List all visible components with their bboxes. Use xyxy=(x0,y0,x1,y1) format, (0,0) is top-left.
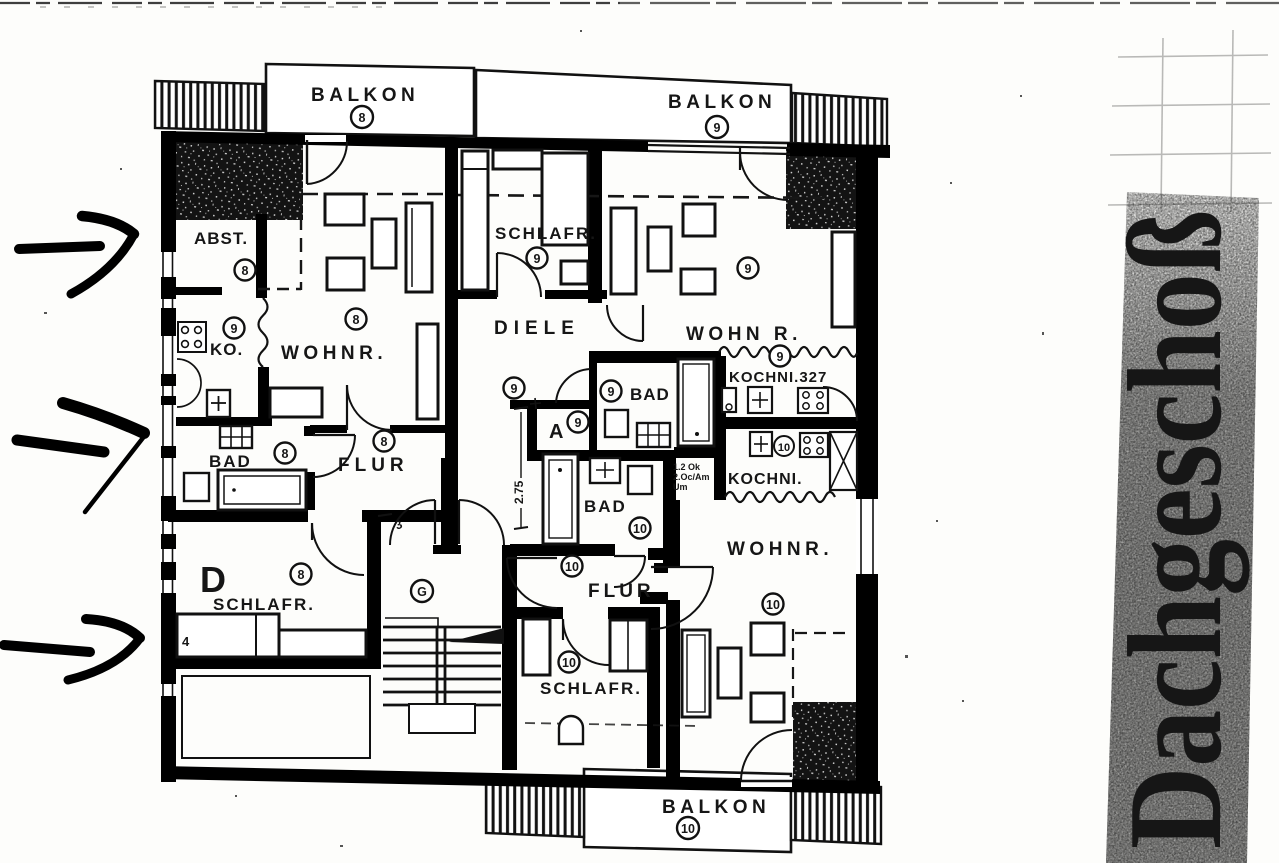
svg-text:BALKON: BALKON xyxy=(311,85,419,106)
svg-text:9: 9 xyxy=(608,385,615,399)
svg-text:BAD: BAD xyxy=(630,385,670,404)
svg-text:BALKON: BALKON xyxy=(668,92,776,113)
svg-text:BALKON: BALKON xyxy=(662,797,770,818)
svg-text:KO.: KO. xyxy=(210,340,243,359)
svg-text:Um: Um xyxy=(673,482,688,492)
svg-text:G: G xyxy=(417,585,427,599)
svg-text:FLUR: FLUR xyxy=(588,581,655,602)
svg-text:ABST.: ABST. xyxy=(194,229,248,248)
svg-text:SCHLAFR.: SCHLAFR. xyxy=(213,595,315,614)
svg-text:A: A xyxy=(549,421,563,443)
svg-text:KOCHNI.327: KOCHNI.327 xyxy=(729,369,827,386)
svg-text:10: 10 xyxy=(681,822,695,836)
svg-text:10: 10 xyxy=(565,560,579,574)
svg-text:8: 8 xyxy=(282,447,289,461)
svg-text:9: 9 xyxy=(511,382,518,396)
svg-text:10: 10 xyxy=(562,656,576,670)
svg-text:8: 8 xyxy=(353,313,360,327)
svg-text:8: 8 xyxy=(242,264,249,278)
svg-text:SCHLAFR.: SCHLAFR. xyxy=(495,224,597,243)
svg-text:SCHLAFR.: SCHLAFR. xyxy=(540,679,642,698)
svg-text:D: D xyxy=(200,559,226,600)
svg-text:2.Oc/Am: 2.Oc/Am xyxy=(673,472,710,482)
svg-text:2.75: 2.75 xyxy=(512,480,526,504)
svg-text:10: 10 xyxy=(778,442,790,454)
svg-text:9: 9 xyxy=(714,121,721,135)
svg-text:9: 9 xyxy=(534,252,541,266)
svg-text:9: 9 xyxy=(777,350,784,364)
svg-text:8: 8 xyxy=(359,111,366,125)
svg-text:BAD: BAD xyxy=(584,497,627,516)
svg-text:KOCHNI.: KOCHNI. xyxy=(728,471,803,488)
svg-text:DIELE: DIELE xyxy=(494,318,580,339)
svg-text:8: 8 xyxy=(298,568,305,582)
svg-text:10: 10 xyxy=(766,598,780,612)
svg-text:9: 9 xyxy=(231,322,238,336)
svg-text:WOHNR.: WOHNR. xyxy=(727,539,833,560)
svg-text:8: 8 xyxy=(381,435,388,449)
svg-text:WOHN R.: WOHN R. xyxy=(686,324,802,345)
svg-text:9: 9 xyxy=(575,416,582,430)
svg-text:WOHNR.: WOHNR. xyxy=(281,343,387,364)
svg-text:10: 10 xyxy=(633,522,647,536)
svg-text:4: 4 xyxy=(182,634,190,649)
svg-text:1.2 Ok: 1.2 Ok xyxy=(673,462,701,472)
svg-text:FLUR: FLUR xyxy=(338,455,409,476)
svg-text:BAD: BAD xyxy=(209,452,252,471)
svg-text:Dachgeschoß: Dachgeschoß xyxy=(1100,210,1250,849)
svg-text:9: 9 xyxy=(745,262,752,276)
